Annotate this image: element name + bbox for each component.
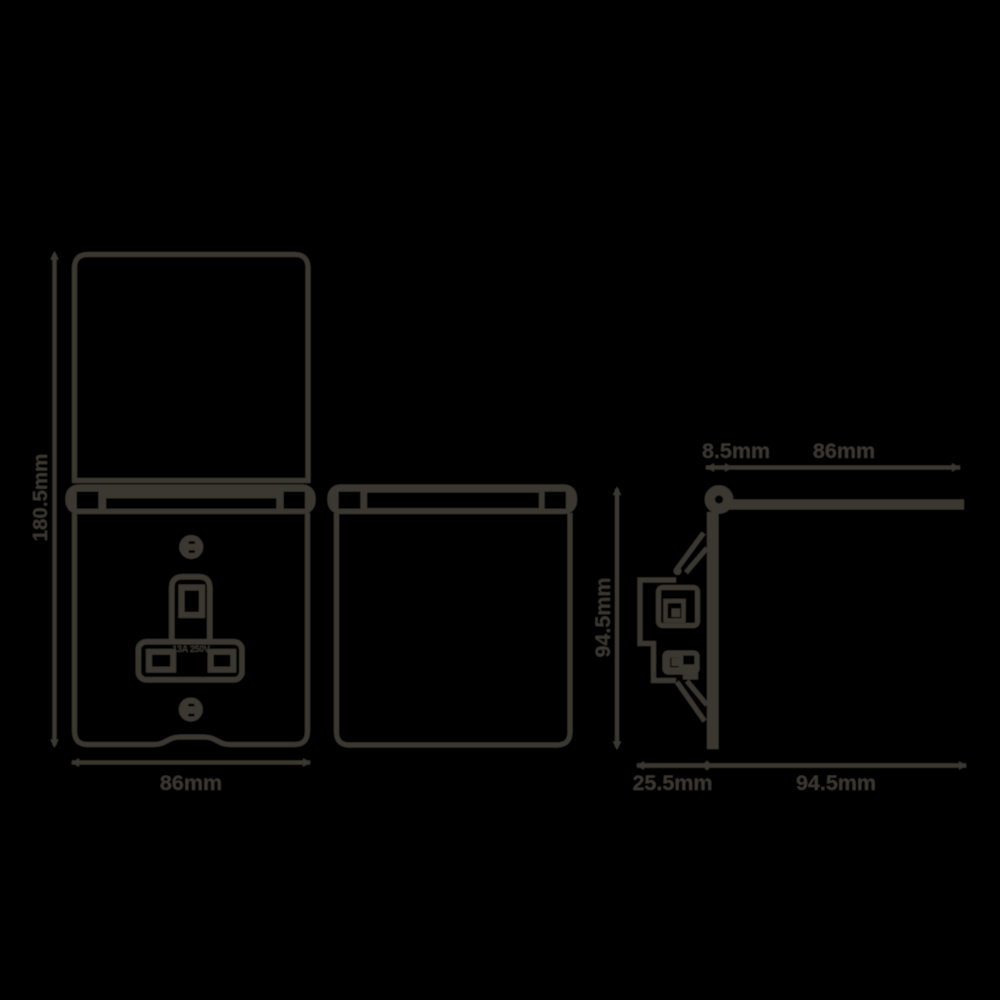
svg-text:94.5mm: 94.5mm — [796, 771, 876, 795]
svg-text:13A 250V: 13A 250V — [172, 644, 210, 654]
svg-text:94.5mm: 94.5mm — [591, 577, 615, 657]
svg-text:86mm: 86mm — [813, 439, 875, 463]
svg-text:180.5mm: 180.5mm — [29, 454, 52, 542]
svg-text:8.5mm: 8.5mm — [702, 439, 770, 463]
svg-text:25.5mm: 25.5mm — [632, 771, 712, 795]
svg-text:86mm: 86mm — [160, 771, 222, 795]
